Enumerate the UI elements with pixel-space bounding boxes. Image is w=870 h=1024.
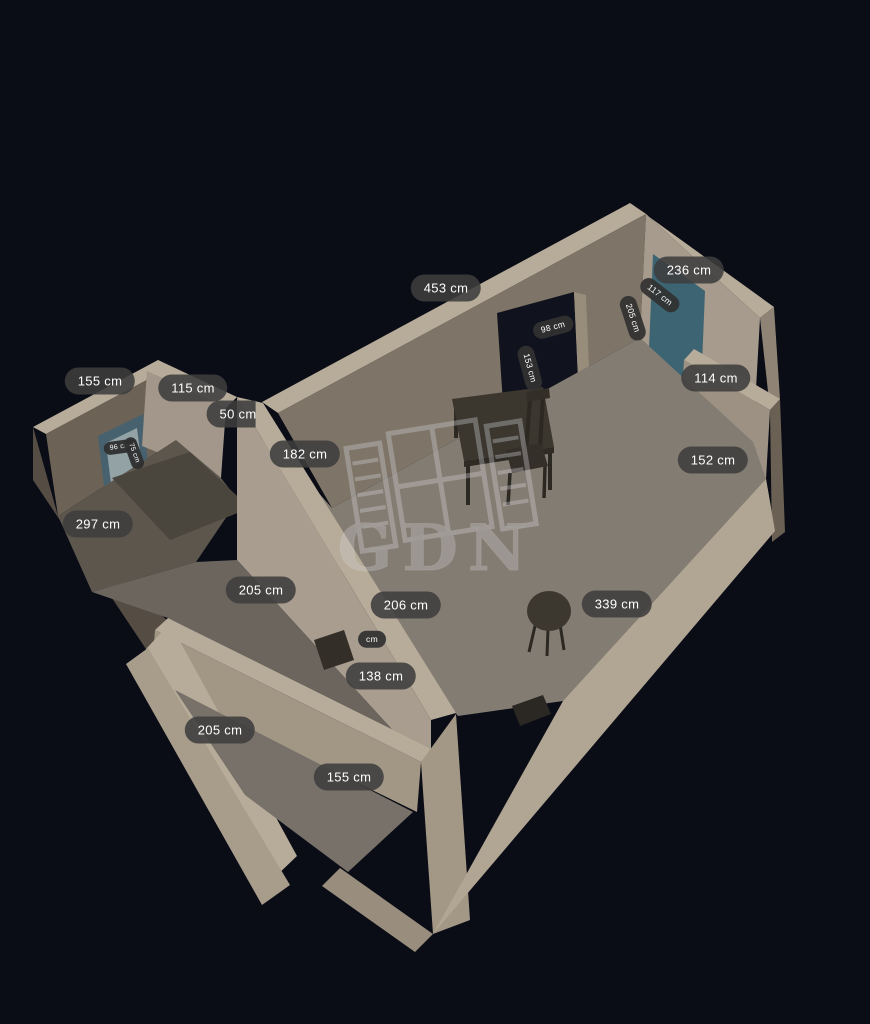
dimension-label-155-top: 155 cm	[65, 368, 135, 395]
dimension-label-155-bottom: 155 cm	[314, 764, 384, 791]
dimension-label-205-mid: 205 cm	[226, 577, 296, 604]
dimension-label-236: 236 cm	[654, 257, 724, 284]
dimension-label-339: 339 cm	[582, 591, 652, 618]
dimension-label-453: 453 cm	[411, 275, 481, 302]
watermark-text: GDN	[338, 511, 537, 586]
bottom-front-wall-top	[322, 868, 433, 952]
dimension-label-297: 297 cm	[63, 511, 133, 538]
dimension-label-138: 138 cm	[346, 663, 416, 690]
dimension-label-182: 182 cm	[270, 441, 340, 468]
dimension-label-206: 206 cm	[371, 592, 441, 619]
floorplan-viewer: GDN 453 cm 98 cm 153 cm 117 cm 205 cm 23…	[0, 0, 870, 1024]
dimension-label-114: 114 cm	[681, 365, 750, 392]
dimension-label-152: 152 cm	[678, 447, 748, 474]
dimension-label-205-bottom: 205 cm	[185, 717, 255, 744]
dimension-label-115: 115 cm	[158, 375, 227, 402]
floorplan-3d-canvas[interactable]: GDN	[0, 0, 870, 1024]
dimension-label-partial: cm	[358, 631, 386, 648]
